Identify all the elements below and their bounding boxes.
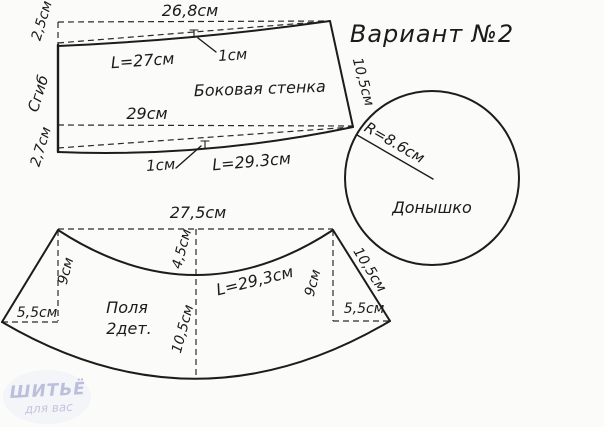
brim-top-curve-drop-label: 4,5см xyxy=(169,227,195,271)
brim-name-line1-label: Поля xyxy=(106,298,148,317)
variant-title: Вариант №2 xyxy=(350,20,514,48)
side-wall-bottom-notch-label: 1см xyxy=(146,155,176,175)
side-wall-bottom-notch-tick xyxy=(201,141,209,148)
side-wall-bottom-curve xyxy=(58,127,353,153)
side-wall-right-edge-label: 10,5см xyxy=(349,56,377,108)
side-wall-left-bottom-offset-label: 2,7см xyxy=(28,125,55,169)
brim-left-base-label: 5,5см xyxy=(17,305,58,321)
side-wall-bottom-chord-dashed xyxy=(58,125,353,126)
side-wall-fold-label: Сгиб xyxy=(24,73,52,114)
side-wall-left-top-offset-label: 2,5см xyxy=(29,0,56,43)
brim-top-width-label: 27,5см xyxy=(170,203,227,222)
brim-left-height-label: 9см xyxy=(55,255,78,286)
brim-right-height-label: 9см xyxy=(302,267,325,298)
side-wall-bottom-width-label: 29см xyxy=(126,104,167,123)
crown-piece: R=8.6см Донышко xyxy=(345,91,519,265)
pattern-sheet: 26,8см 2,5см Сгиб 2,7см L=27см 1см Боков… xyxy=(0,0,604,427)
brim-name-line2-label: 2дет. xyxy=(106,319,152,338)
brim-right-base-label: 5,5см xyxy=(344,301,385,317)
sewing-pattern-diagram: 26,8см 2,5см Сгиб 2,7см L=27см 1см Боков… xyxy=(0,0,604,427)
side-wall-top-arc-length-label: L=27см xyxy=(110,49,175,72)
side-wall-top-width-label: 26,8см xyxy=(162,1,219,20)
watermark-logo: ШИТЬЁ для вас xyxy=(3,370,91,424)
side-wall-bottom-arc-length-label: L=29.3см xyxy=(211,149,291,175)
side-wall-top-chord-dashed xyxy=(58,21,330,22)
side-wall-top-notch-leader xyxy=(198,38,216,52)
side-wall-top-notch-label: 1см xyxy=(218,45,248,65)
crown-name-label: Донышко xyxy=(391,198,472,217)
brim-center-height-label: 10,5см xyxy=(169,303,197,355)
side-wall-name-label: Боковая стенка xyxy=(193,77,326,101)
watermark-line2: для вас xyxy=(23,400,73,417)
side-wall-piece: 26,8см 2,5см Сгиб 2,7см L=27см 1см Боков… xyxy=(24,0,377,175)
brim-piece: 27,5см 4,5см 9см 10,5см Поля 2дет. 5,5см… xyxy=(2,203,390,379)
